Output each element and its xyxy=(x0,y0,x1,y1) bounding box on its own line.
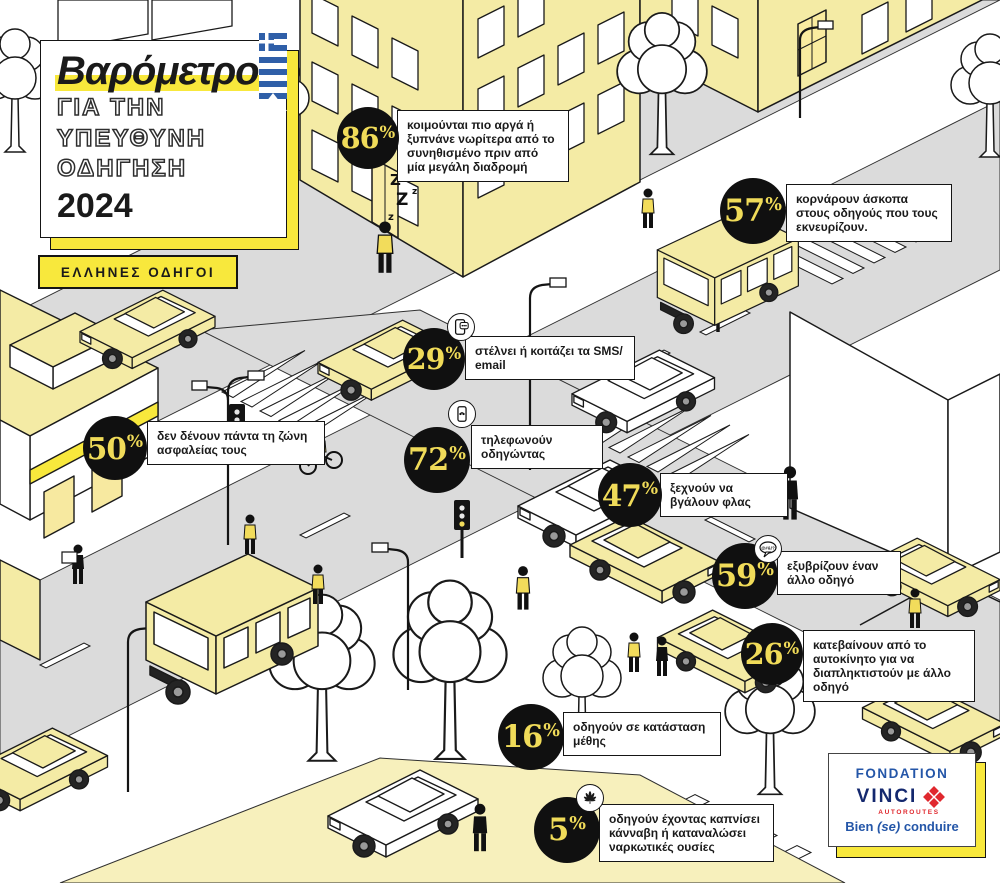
stat-label-box: οδηγούν έχοντας καπνίσει κάνναβη ή καταν… xyxy=(599,804,774,862)
stat-percent-sign: % xyxy=(379,122,395,142)
stat-circle: 26% xyxy=(741,623,803,685)
svg-text:z: z xyxy=(412,187,417,197)
stat-label: δεν δένουν πάντα τη ζώνη ασφαλείας τους xyxy=(157,429,307,457)
greek-flag-icon xyxy=(259,33,287,111)
stat-label-box: στέλνει ή κοιτάζει τα SMS/ email xyxy=(465,336,635,380)
stat-value: 59 xyxy=(716,558,756,594)
tagline-pre: Bien xyxy=(845,819,877,834)
vinci-brand-row: VINCI xyxy=(857,784,948,810)
stat-circle: 50% xyxy=(83,416,147,480)
subtitle-line-2: ΥΠΕΥΘΥΝΗ xyxy=(57,124,286,155)
stat-circle: 47% xyxy=(598,463,662,527)
tagline-post: conduire xyxy=(900,819,959,834)
tagline-italic: (se) xyxy=(877,819,900,834)
stat-percent-sign: % xyxy=(449,443,466,464)
stat-label: κοιμούνται πιο αργά ή ξυπνάνε νωρίτερα α… xyxy=(407,118,555,174)
svg-text:@#&!?: @#&!? xyxy=(761,545,775,550)
stat-label: οδηγούν σε κατάσταση μέθης xyxy=(573,720,705,748)
stat-label-box: ξεχνούν να βγάλουν φλας xyxy=(660,473,788,517)
stat-label: κορνάρουν άσκοπα στους οδηγούς που τους … xyxy=(796,192,938,234)
vinci-wordmark: VINCI xyxy=(857,786,918,808)
stat-value: 29 xyxy=(407,342,445,376)
stat-label-box: κορνάρουν άσκοπα στους οδηγούς που τους … xyxy=(786,184,952,242)
stat-value: 50 xyxy=(87,431,126,466)
stat-label-box: οδηγούν σε κατάσταση μέθης xyxy=(563,712,721,756)
stat-value: 86 xyxy=(341,121,379,155)
phone-icon xyxy=(448,400,476,428)
subtitle-line-1: ΓΙΑ ΤΗΝ xyxy=(57,93,286,124)
stat-circle: 57% xyxy=(720,178,786,244)
stat-value: 72 xyxy=(408,442,448,478)
stat-percent-sign: % xyxy=(127,432,143,452)
stat-label: στέλνει ή κοιτάζει τα SMS/ email xyxy=(475,344,623,372)
stat-circle: 86% xyxy=(337,107,399,169)
subtitle-line-3: ΟΔΗΓΗΣΗ xyxy=(57,154,286,185)
stat-label: κατεβαίνουν από το αυτοκίνητο για να δια… xyxy=(813,638,951,694)
svg-text:z: z xyxy=(388,212,394,223)
stat-label-box: κατεβαίνουν από το αυτοκίνητο για να δια… xyxy=(803,630,975,702)
infographic-poster: Z z Z z z Βαρόμετρο ΓΙΑ ΤΗΝ ΥΠΕΥ xyxy=(0,0,1000,883)
stat-value: 16 xyxy=(502,719,542,755)
stat-value: 47 xyxy=(602,478,641,513)
title-year: 2024 xyxy=(57,187,286,226)
stat-circle: 72% xyxy=(404,427,470,493)
stat-percent-sign: % xyxy=(642,479,658,499)
svg-text:Z: Z xyxy=(396,190,408,210)
cannabis-icon xyxy=(576,784,604,812)
stat-label-box: κοιμούνται πιο αργά ή ξυπνάνε νωρίτερα α… xyxy=(397,110,569,182)
fondation-label: FONDATION xyxy=(856,766,949,781)
fondation-vinci-logo-card: FONDATION VINCI AUTOROUTES Bien (se) con… xyxy=(828,753,976,847)
title-card: Βαρόμετρο ΓΙΑ ΤΗΝ ΥΠΕΥΘΥΝΗ ΟΔΗΓΗΣΗ 2024 xyxy=(40,40,287,238)
stat-value: 57 xyxy=(724,193,764,229)
stat-percent-sign: % xyxy=(543,720,560,741)
stat-value: 26 xyxy=(745,637,783,671)
title-text: Βαρόμετρο xyxy=(57,49,259,93)
poster-title: Βαρόμετρο xyxy=(57,49,259,93)
stat-label: τηλεφωνούν οδηγώντας xyxy=(481,433,552,461)
curse-bubble-icon: @#&!? xyxy=(754,535,782,563)
autoroutes-label: AUTOROUTES xyxy=(878,809,939,816)
stat-percent-sign: % xyxy=(765,194,782,215)
stat-percent-sign: % xyxy=(569,813,586,834)
stat-value: 5 xyxy=(548,812,568,848)
stat-percent-sign: % xyxy=(783,638,799,658)
title-subtitle: ΓΙΑ ΤΗΝ ΥΠΕΥΘΥΝΗ ΟΔΗΓΗΣΗ xyxy=(57,93,286,185)
vinci-logo-mark xyxy=(921,784,947,810)
vinci-tagline: Bien (se) conduire xyxy=(845,819,958,834)
stat-label-box: δεν δένουν πάντα τη ζώνη ασφαλείας τους xyxy=(147,421,325,465)
stat-circle: 16% xyxy=(498,704,564,770)
stat-label-box: τηλεφωνούν οδηγώντας xyxy=(471,425,603,469)
stat-percent-sign: % xyxy=(445,343,461,363)
stat-label: εξυβρίζουν έναν άλλο οδηγό xyxy=(787,559,878,587)
stat-label: ξεχνούν να βγάλουν φλας xyxy=(670,481,751,509)
stat-label: οδηγούν έχοντας καπνίσει κάνναβη ή καταν… xyxy=(609,812,760,854)
greek-drivers-badge: ΕΛΛΗΝΕΣ ΟΔΗΓΟΙ xyxy=(38,255,238,289)
sms-icon xyxy=(447,313,475,341)
stat-label-box: εξυβρίζουν έναν άλλο οδηγό xyxy=(777,551,901,595)
